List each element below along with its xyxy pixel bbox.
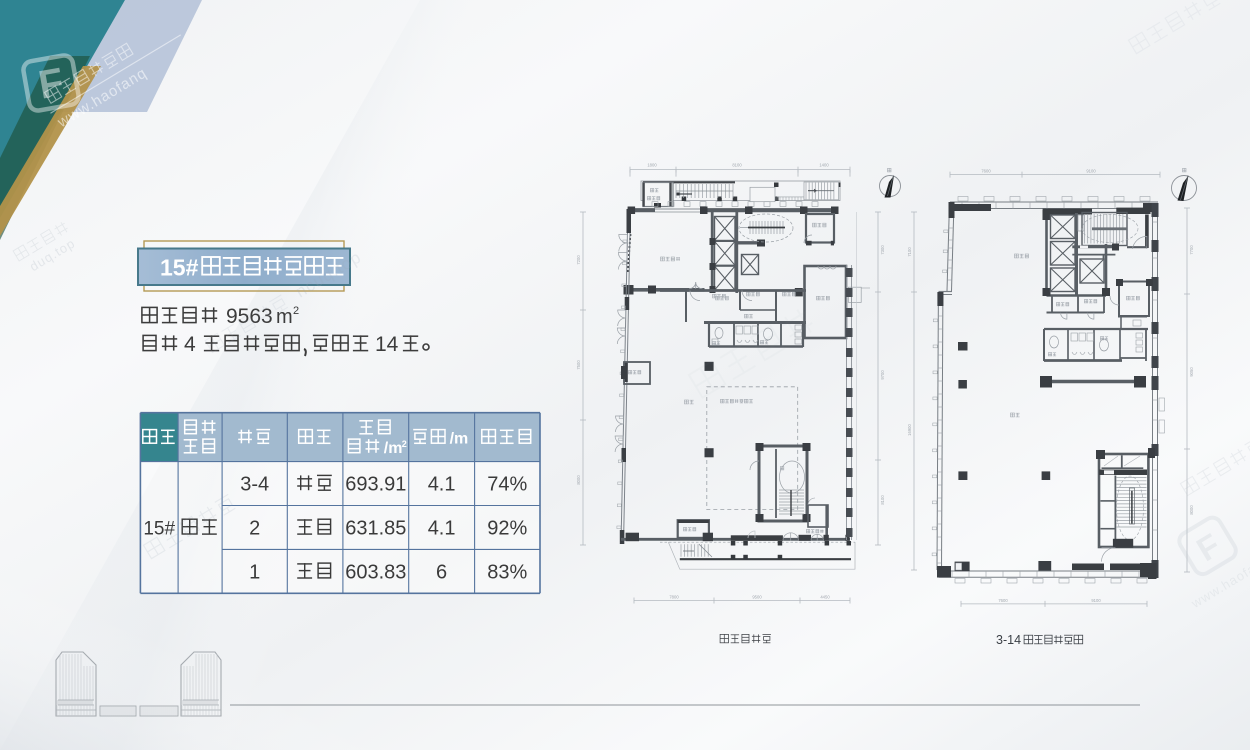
svg-text:603.83: 603.83 [345, 561, 406, 583]
svg-text:14: 14 [375, 333, 399, 356]
svg-text:9500: 9500 [752, 595, 762, 600]
svg-text:7200: 7200 [576, 255, 581, 265]
svg-text:4.1: 4.1 [428, 518, 456, 540]
svg-text:9100: 9100 [1086, 169, 1096, 174]
svg-text:1: 1 [249, 561, 260, 583]
svg-text:1800: 1800 [647, 163, 657, 168]
svg-text:2: 2 [249, 518, 260, 540]
svg-text:7700: 7700 [1189, 245, 1194, 255]
svg-text:9050: 9050 [1189, 367, 1194, 377]
svg-text:92%: 92% [487, 518, 527, 540]
svg-text:16900: 16900 [907, 424, 912, 436]
svg-text:/m: /m [384, 440, 403, 457]
svg-text:8100: 8100 [732, 163, 742, 168]
svg-text:2: 2 [402, 439, 407, 449]
svg-text:7100: 7100 [907, 247, 912, 257]
svg-text:7600: 7600 [981, 169, 991, 174]
svg-text:8000: 8000 [576, 475, 581, 485]
svg-text:/m: /m [450, 431, 469, 448]
svg-text:7600: 7600 [998, 598, 1008, 603]
svg-text:693.91: 693.91 [345, 474, 406, 496]
svg-text:3-4: 3-4 [240, 474, 269, 496]
svg-text:4: 4 [184, 333, 196, 356]
svg-text:8100: 8100 [880, 495, 885, 505]
svg-text:15#: 15# [143, 519, 175, 540]
svg-text:6: 6 [436, 561, 447, 583]
svg-text:4.1: 4.1 [428, 474, 456, 496]
svg-text:74%: 74% [487, 474, 527, 496]
svg-text:4450: 4450 [820, 595, 830, 600]
svg-text:631.85: 631.85 [345, 518, 406, 540]
svg-text:9100: 9100 [1091, 598, 1101, 603]
svg-text:8000: 8000 [1189, 505, 1194, 515]
svg-text:7500: 7500 [576, 360, 581, 370]
svg-text:1400: 1400 [819, 163, 829, 168]
svg-text:7800: 7800 [669, 595, 679, 600]
svg-text:3-14: 3-14 [996, 633, 1021, 647]
svg-text:2: 2 [293, 305, 299, 317]
svg-text:15#: 15# [160, 255, 199, 281]
svg-text:83%: 83% [487, 561, 527, 583]
svg-text:9700: 9700 [880, 370, 885, 380]
svg-text:7300: 7300 [880, 245, 885, 255]
